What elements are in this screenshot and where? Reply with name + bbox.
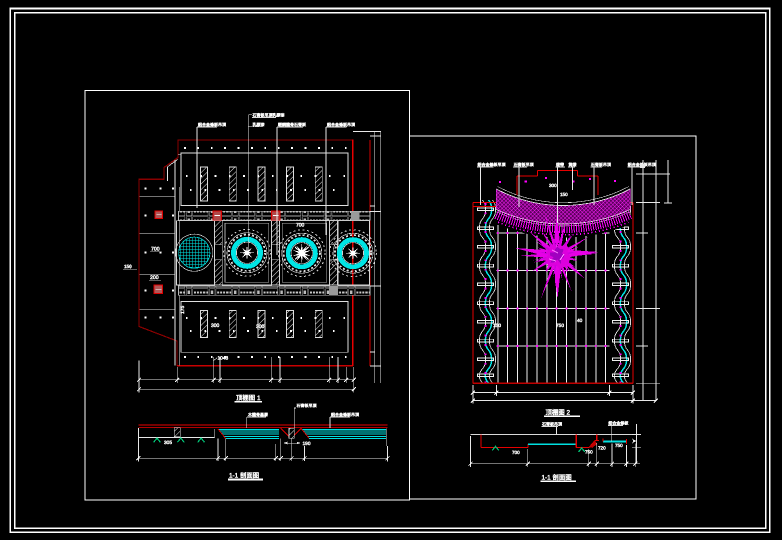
svg-text:750: 750 [556, 323, 564, 329]
svg-text:鋁合金條板吊頂: 鋁合金條板吊頂 [331, 412, 359, 417]
svg-text:300: 300 [549, 183, 557, 188]
svg-text:鋁合金條板吊頂: 鋁合金條板吊頂 [327, 122, 355, 127]
svg-text:石膏板吊頂: 石膏板吊頂 [514, 162, 534, 167]
svg-text:175: 175 [180, 305, 186, 314]
svg-text:150: 150 [124, 264, 132, 269]
svg-text:40: 40 [577, 318, 583, 324]
svg-text:700: 700 [512, 450, 520, 455]
svg-text:鋁合金條板: 鋁合金條板 [608, 421, 628, 426]
svg-text:1-1 剖面图: 1-1 剖面图 [229, 472, 259, 480]
svg-text:石膏板吊頂: 石膏板吊頂 [542, 422, 562, 427]
svg-text:石膏板吊頂: 石膏板吊頂 [297, 403, 317, 408]
svg-text:720: 720 [598, 446, 606, 451]
svg-text:顶棚图 1: 顶棚图 1 [236, 394, 261, 402]
svg-text:鋁合金條板吊頂: 鋁合金條板吊頂 [478, 162, 506, 167]
svg-text:150: 150 [493, 323, 501, 329]
svg-text:305: 305 [164, 440, 172, 446]
svg-text:燈帶: 燈帶 [556, 162, 564, 167]
svg-text:鋁合金條板吊頂: 鋁合金條板吊頂 [198, 122, 226, 127]
svg-text:150: 150 [560, 192, 568, 197]
svg-text:1048: 1048 [218, 356, 229, 362]
svg-text:筒燈: 筒燈 [569, 162, 577, 167]
svg-text:石膏板吊頂乳膠漆: 石膏板吊頂乳膠漆 [253, 113, 285, 118]
svg-text:石膏板吊頂: 石膏板吊頂 [591, 162, 611, 167]
svg-text:700: 700 [296, 223, 305, 229]
svg-text:750: 750 [585, 450, 593, 455]
svg-text:300: 300 [211, 323, 220, 329]
svg-text:300: 300 [256, 324, 265, 330]
svg-text:190: 190 [303, 441, 311, 447]
svg-text:1-1 剖面图: 1-1 剖面图 [542, 474, 572, 482]
svg-text:750: 750 [615, 443, 623, 448]
svg-text:輕鋼龍骨石膏板: 輕鋼龍骨石膏板 [278, 122, 306, 127]
svg-text:木龍骨基層: 木龍骨基層 [248, 412, 268, 417]
svg-text:乳膠漆: 乳膠漆 [253, 122, 265, 127]
svg-text:顶棚图 2: 顶棚图 2 [546, 409, 571, 417]
